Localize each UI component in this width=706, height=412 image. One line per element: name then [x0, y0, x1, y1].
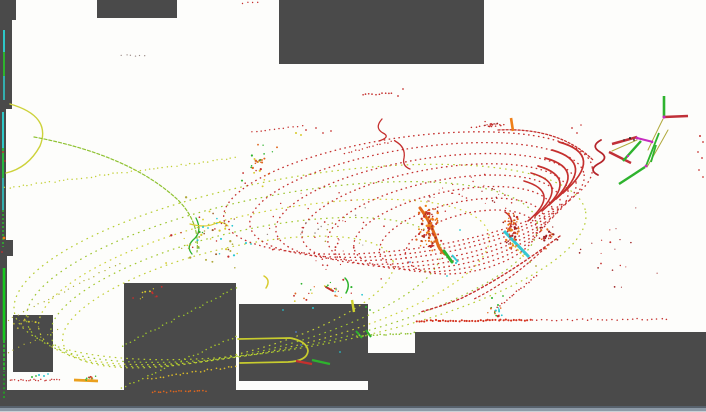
point: [422, 220, 424, 222]
point: [510, 246, 512, 248]
point: [157, 167, 158, 168]
point: [194, 390, 196, 392]
point: [140, 170, 141, 171]
point: [645, 165, 648, 168]
point: [433, 240, 435, 242]
point: [4, 187, 5, 188]
point: [133, 382, 135, 384]
point: [154, 329, 156, 331]
point: [425, 213, 427, 215]
point: [59, 379, 60, 380]
point: [389, 333, 391, 335]
point: [487, 319, 489, 321]
point: [122, 345, 124, 347]
point: [434, 237, 436, 239]
point: [220, 238, 222, 240]
point: [35, 321, 37, 323]
point: [13, 186, 14, 187]
point: [23, 344, 24, 345]
point: [428, 201, 429, 202]
point: [657, 273, 658, 274]
point: [198, 227, 200, 229]
point: [160, 376, 162, 378]
point: [635, 207, 636, 208]
point: [19, 320, 20, 321]
point: [409, 261, 411, 263]
point: [591, 243, 592, 244]
point: [267, 234, 268, 235]
point: [130, 342, 132, 344]
point: [13, 323, 15, 325]
point: [262, 144, 263, 145]
point: [47, 373, 49, 375]
point: [582, 318, 584, 320]
point: [471, 320, 473, 322]
point: [476, 126, 478, 128]
occlusion-blocks: [0, 0, 706, 412]
point: [327, 224, 328, 225]
point: [483, 185, 484, 186]
point: [499, 191, 500, 192]
point: [518, 230, 520, 232]
point: [179, 374, 181, 376]
point: [423, 215, 425, 217]
point: [376, 334, 378, 336]
point: [431, 228, 433, 230]
point: [314, 286, 315, 287]
point: [339, 351, 341, 353]
point: [222, 341, 224, 343]
point: [303, 298, 305, 300]
scan-ring-red: [242, 123, 592, 277]
point: [494, 311, 496, 313]
point: [178, 390, 180, 392]
point: [426, 319, 428, 321]
point: [273, 216, 275, 218]
point: [274, 129, 275, 130]
point: [365, 335, 367, 337]
point: [699, 135, 701, 137]
point: [24, 320, 26, 322]
point: [485, 125, 486, 126]
point: [536, 275, 538, 277]
trail-path: [326, 287, 333, 291]
point: [384, 142, 385, 143]
point: [300, 234, 301, 235]
point: [38, 374, 40, 376]
point: [490, 308, 492, 310]
occlusion-block: [0, 390, 706, 406]
point: [425, 205, 427, 207]
point: [497, 315, 499, 317]
point: [173, 319, 175, 321]
point: [155, 372, 157, 374]
point: [170, 234, 172, 236]
point: [523, 286, 525, 288]
point: [216, 218, 218, 220]
point: [68, 288, 69, 289]
point: [662, 318, 664, 320]
point: [198, 247, 199, 248]
point: [224, 368, 226, 370]
point: [29, 328, 31, 330]
point: [576, 132, 578, 134]
point: [104, 270, 105, 271]
point: [390, 141, 391, 142]
point: [229, 250, 231, 252]
point: [428, 237, 430, 239]
point: [202, 390, 204, 392]
point: [334, 291, 335, 292]
point: [630, 242, 631, 243]
point: [702, 141, 704, 143]
point: [471, 127, 473, 129]
point: [545, 248, 547, 250]
point: [426, 225, 428, 227]
point: [421, 320, 423, 322]
point: [539, 227, 541, 229]
point: [698, 169, 700, 171]
point: [293, 295, 295, 297]
point: [449, 320, 451, 322]
point: [191, 371, 193, 373]
point: [138, 380, 140, 382]
point: [12, 349, 13, 350]
point: [27, 308, 28, 309]
point: [199, 307, 201, 309]
point: [337, 243, 339, 245]
point: [310, 289, 311, 290]
white-gap: [236, 381, 368, 390]
point: [121, 387, 123, 389]
point: [486, 199, 487, 200]
point: [216, 367, 218, 369]
point: [701, 157, 703, 159]
point: [348, 152, 349, 153]
point: [501, 314, 503, 316]
point: [601, 240, 602, 241]
point: [539, 237, 541, 239]
point: [301, 283, 303, 285]
point: [499, 319, 501, 321]
point: [511, 202, 513, 204]
point: [472, 181, 473, 182]
point: [369, 146, 370, 147]
point: [224, 223, 225, 224]
point: [189, 256, 191, 258]
point: [471, 177, 472, 178]
point: [334, 288, 335, 289]
point: [189, 390, 191, 392]
point: [426, 244, 427, 245]
point: [40, 336, 41, 337]
point: [254, 158, 256, 160]
point: [518, 319, 520, 321]
point: [195, 371, 197, 373]
point: [536, 319, 538, 321]
point: [459, 229, 461, 231]
point: [629, 137, 631, 139]
point: [205, 390, 207, 392]
point: [509, 230, 511, 232]
point: [510, 320, 512, 322]
point: [63, 180, 64, 181]
point: [503, 319, 505, 321]
point: [182, 372, 184, 374]
point: [429, 214, 431, 216]
point: [226, 159, 227, 160]
point: [514, 228, 516, 230]
point: [247, 2, 248, 3]
point: [325, 240, 327, 242]
point: [314, 232, 316, 234]
point: [8, 320, 9, 321]
point: [541, 238, 543, 240]
point: [561, 319, 563, 321]
point: [477, 320, 479, 322]
point: [530, 319, 532, 321]
point: [44, 301, 45, 302]
point: [619, 239, 620, 240]
point: [142, 378, 144, 380]
point: [142, 292, 144, 294]
point: [132, 297, 134, 299]
point: [571, 127, 573, 129]
point: [52, 332, 53, 333]
point: [168, 365, 170, 367]
point: [85, 379, 86, 380]
point: [548, 244, 549, 245]
point: [31, 376, 33, 378]
trail-path: [593, 140, 605, 175]
point: [499, 124, 501, 126]
point: [442, 319, 444, 321]
point: [366, 147, 367, 148]
point: [64, 291, 65, 292]
point: [234, 157, 235, 158]
point: [609, 241, 611, 243]
point: [294, 293, 296, 295]
point: [255, 163, 257, 165]
point: [28, 321, 30, 323]
point: [56, 379, 57, 380]
point: [38, 380, 39, 381]
point: [431, 233, 432, 234]
point: [337, 226, 338, 227]
point: [131, 170, 132, 171]
point: [479, 126, 481, 128]
point: [623, 139, 625, 141]
point: [338, 239, 339, 240]
point: [511, 295, 513, 297]
point: [518, 228, 520, 230]
point: [429, 245, 431, 247]
point: [498, 309, 500, 311]
point: [697, 151, 699, 153]
point: [506, 242, 508, 244]
point: [597, 267, 599, 269]
point: [231, 225, 233, 227]
point: [359, 243, 360, 244]
point: [511, 235, 513, 237]
point: [297, 126, 298, 127]
point: [496, 197, 497, 198]
point: [426, 234, 428, 236]
point: [22, 326, 23, 327]
point: [351, 151, 352, 152]
point: [26, 185, 27, 186]
point: [383, 334, 385, 336]
point: [420, 231, 422, 233]
point: [44, 182, 45, 183]
point: [32, 321, 33, 322]
point: [548, 231, 550, 233]
point: [116, 172, 117, 173]
point: [185, 390, 187, 392]
occlusion-block: [279, 0, 484, 64]
point: [225, 248, 227, 250]
point: [176, 166, 177, 167]
point: [162, 324, 164, 326]
point: [181, 360, 183, 362]
point: [210, 238, 211, 239]
point: [511, 248, 512, 249]
point: [259, 159, 261, 161]
point: [633, 139, 635, 141]
point: [134, 339, 136, 341]
point: [295, 331, 297, 333]
point: [514, 226, 516, 228]
point: [261, 161, 263, 163]
point: [250, 243, 252, 245]
point: [192, 247, 194, 249]
point: [540, 229, 542, 231]
point: [513, 213, 515, 215]
point: [263, 179, 265, 181]
point: [59, 180, 60, 181]
occlusion-block: [0, 406, 706, 408]
point: [550, 238, 551, 239]
point: [379, 333, 381, 335]
point: [431, 222, 433, 224]
point: [365, 306, 367, 308]
point: [211, 300, 213, 302]
point: [180, 164, 181, 165]
point: [526, 319, 528, 321]
point: [520, 288, 522, 290]
point: [455, 320, 457, 322]
point: [164, 368, 166, 370]
point: [484, 174, 486, 176]
point: [342, 220, 343, 221]
point: [202, 351, 204, 353]
point: [272, 151, 273, 152]
scan-rings-red: [216, 112, 600, 286]
point: [614, 249, 615, 250]
point: [119, 263, 120, 264]
point: [428, 234, 431, 237]
point: [491, 297, 493, 299]
point: [501, 303, 503, 305]
point: [221, 159, 222, 160]
point: [109, 267, 110, 268]
point: [632, 318, 634, 320]
point: [79, 283, 80, 284]
scan-ring-red: [320, 159, 567, 284]
point: [400, 332, 402, 334]
point: [198, 231, 200, 233]
point: [104, 174, 105, 175]
point: [620, 265, 621, 266]
point: [160, 369, 162, 371]
point: [528, 282, 530, 284]
point: [245, 242, 247, 244]
point: [260, 130, 261, 131]
point: [356, 335, 358, 337]
point: [510, 226, 512, 228]
point: [371, 334, 373, 336]
point: [269, 129, 270, 130]
point: [307, 208, 308, 209]
point: [515, 319, 517, 321]
point: [350, 286, 352, 288]
point: [509, 297, 511, 299]
point: [433, 226, 435, 228]
point: [14, 379, 15, 380]
point: [485, 203, 486, 204]
point: [23, 184, 24, 185]
point: [556, 239, 558, 241]
point: [418, 233, 420, 235]
point: [210, 346, 212, 348]
point: [368, 93, 370, 95]
point: [361, 294, 363, 296]
trail-path: [498, 130, 594, 161]
point: [121, 55, 122, 56]
point: [302, 125, 303, 126]
point: [30, 342, 31, 343]
point: [121, 172, 122, 173]
point: [228, 366, 230, 368]
point: [163, 391, 165, 393]
point: [496, 307, 498, 309]
point: [351, 293, 352, 294]
point: [262, 185, 264, 187]
point: [494, 319, 496, 321]
point: [153, 168, 154, 169]
point: [651, 319, 653, 321]
point: [552, 226, 553, 227]
point: [76, 178, 77, 179]
point: [216, 223, 217, 224]
point: [158, 327, 160, 329]
point: [197, 353, 199, 355]
segment: [511, 118, 513, 131]
point: [415, 238, 417, 240]
point: [627, 155, 629, 157]
point: [507, 240, 509, 242]
point: [452, 184, 453, 185]
point: [518, 289, 520, 291]
point: [459, 320, 461, 322]
point: [462, 190, 463, 191]
point: [369, 309, 371, 311]
lidar-viewport[interactable]: [0, 0, 706, 412]
scan-ring-red: [373, 185, 551, 285]
point: [466, 320, 468, 322]
point: [178, 316, 180, 318]
point: [126, 54, 127, 55]
